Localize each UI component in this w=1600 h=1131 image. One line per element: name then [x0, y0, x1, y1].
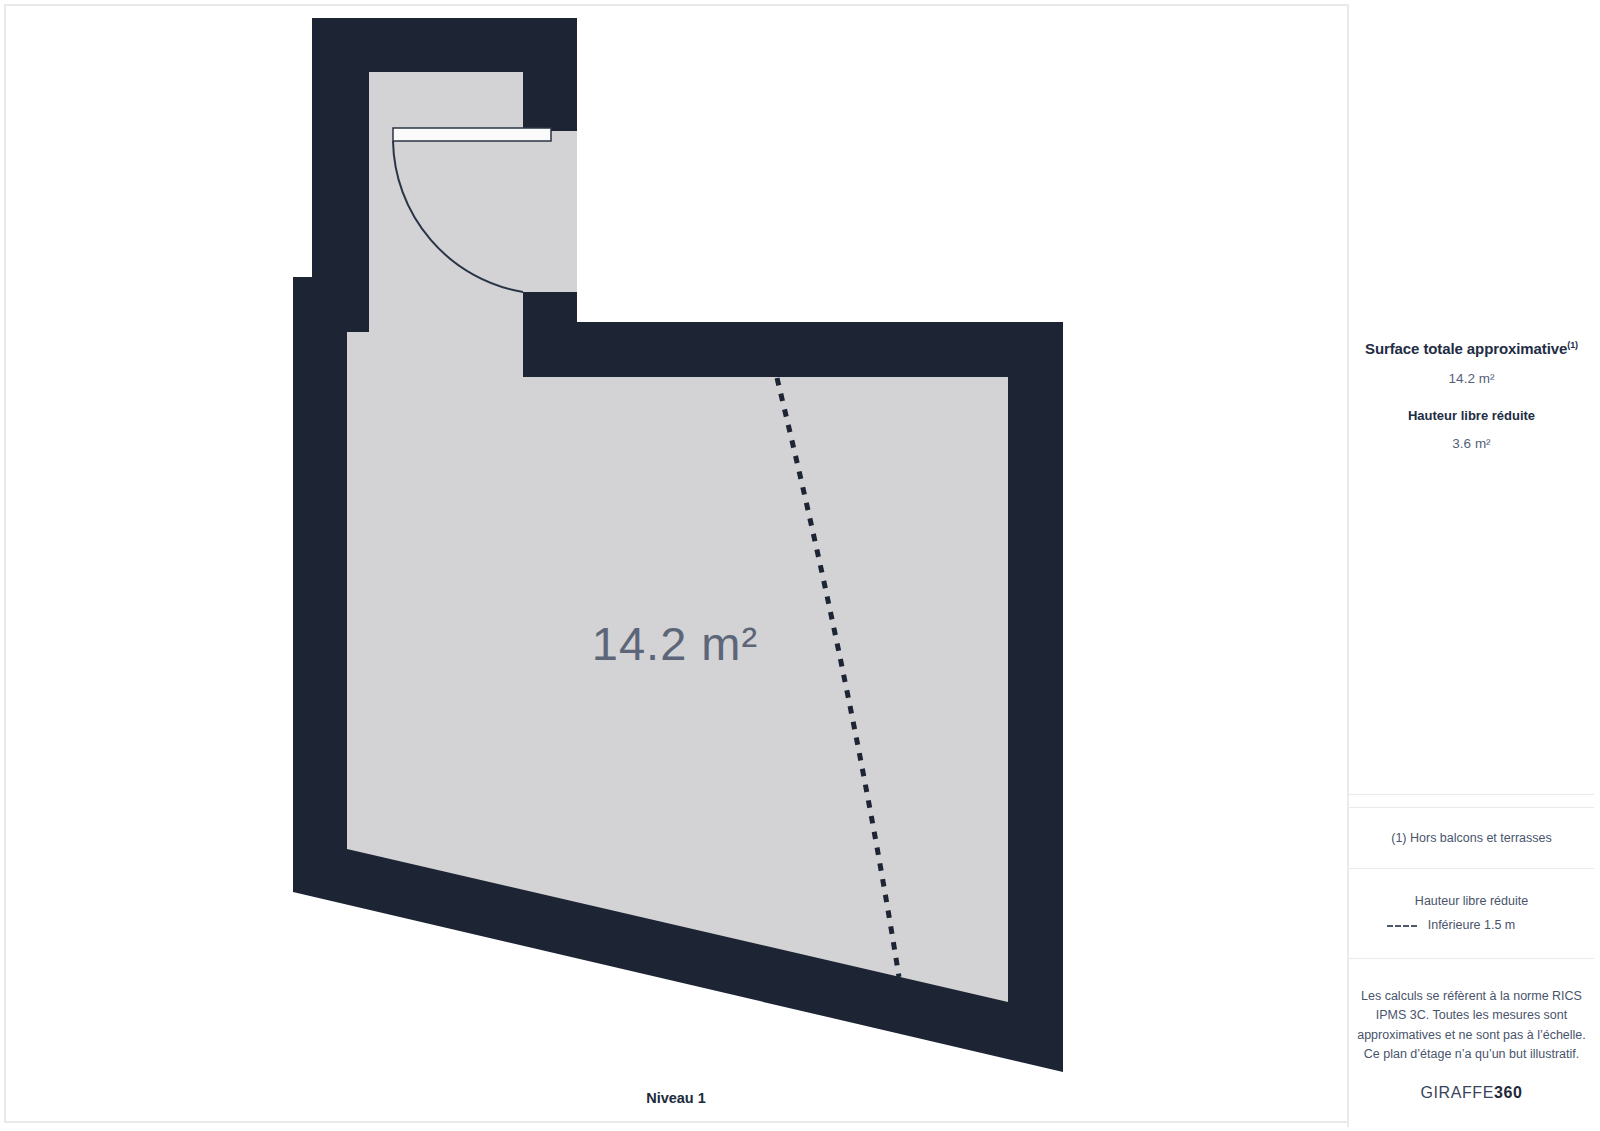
total-area-title: Surface totale approximative(1)	[1349, 340, 1594, 357]
legend-title: Hauteur libre réduite	[1349, 894, 1594, 908]
total-area-value: 14.2 m²	[1349, 371, 1594, 386]
reduced-height-value: 3.6 m²	[1349, 436, 1594, 451]
info-sidebar: Surface totale approximative(1) 14.2 m² …	[1347, 4, 1594, 1127]
legend-item-label: Inférieure 1.5 m	[1428, 918, 1516, 932]
total-area-title-text: Surface totale approximative	[1365, 340, 1567, 357]
disclaimer-section: Les calculs se réfèrent à la norme RICS …	[1349, 959, 1594, 1102]
brand-logo: GIRAFFE360	[1349, 1084, 1594, 1102]
disclaimer-text: Les calculs se réfèrent à la norme RICS …	[1356, 987, 1588, 1065]
footnote-marker: (1)	[1567, 340, 1578, 350]
floor-shape	[347, 72, 1008, 1002]
brand-name: GIRAFFE	[1420, 1084, 1494, 1101]
footnote-section: (1) Hors balcons et terrasses	[1349, 807, 1594, 869]
legend-section: Hauteur libre réduite Inférieure 1.5 m	[1349, 869, 1594, 959]
dashed-line-swatch	[1387, 925, 1417, 927]
door-leaf	[393, 128, 551, 141]
reduced-height-title: Hauteur libre réduite	[1349, 408, 1594, 423]
room-area-label: 14.2 m²	[555, 598, 795, 688]
footnote-text: (1) Hors balcons et terrasses	[1391, 831, 1551, 845]
floorplan-page: { "plan": { "room_area_label": "14.2 m\u…	[0, 0, 1600, 1131]
sidebar-summary-section: Surface totale approximative(1) 14.2 m² …	[1349, 4, 1594, 795]
level-label: Niveau 1	[596, 1090, 756, 1106]
brand-suffix: 360	[1494, 1084, 1523, 1101]
legend-row: Inférieure 1.5 m	[1349, 918, 1594, 932]
